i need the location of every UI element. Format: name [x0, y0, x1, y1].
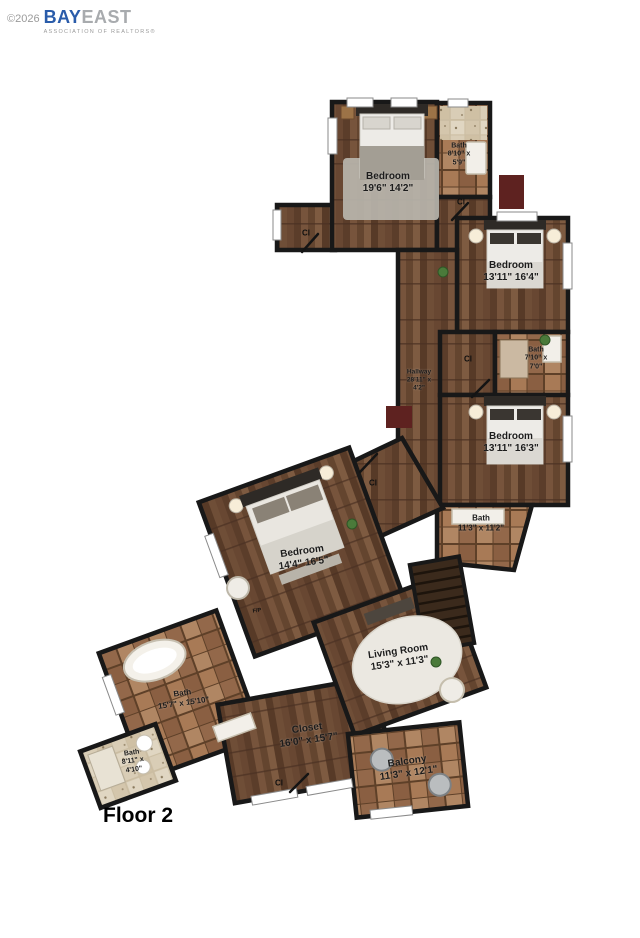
room-dims: 8'10" x: [448, 151, 471, 159]
room-label-bedroom-2: Bedroom 13'11" 16'4": [483, 260, 538, 284]
lamp-table: [469, 229, 483, 243]
brand-tagline: ASSOCIATION OF REALTORS®: [44, 29, 156, 35]
window: [448, 99, 468, 107]
lamp-table: [547, 405, 561, 419]
plant-icon: [431, 657, 441, 667]
window: [273, 210, 281, 240]
dresser: [499, 175, 524, 209]
room-dims: 13'11" 16'4": [483, 272, 538, 284]
window: [328, 118, 337, 154]
window: [563, 243, 572, 289]
room-label-bath-5: Bath 8'11" x 4'10": [120, 748, 145, 776]
bed-headboard: [484, 396, 546, 406]
brand-name: BAYEAST: [44, 8, 156, 27]
copyright-text: ©2026: [7, 13, 40, 25]
room-dims: 11'3" x 11'2": [458, 523, 504, 533]
plant-icon: [438, 267, 448, 277]
pillow: [490, 409, 514, 420]
room-dims: 7'10" x: [525, 355, 548, 363]
room-label-bath-3: Bath 11'3" x 11'2": [458, 513, 504, 532]
closet-marker: Cl: [369, 479, 377, 488]
brand-lockup: BAYEAST ASSOCIATION OF REALTORS®: [44, 8, 156, 35]
room-name: Bedroom: [363, 171, 413, 183]
floor-plan-page: ©2026 BAYEAST ASSOCIATION OF REALTORS®: [0, 0, 640, 938]
floor-plan-svg: [0, 0, 640, 938]
room-label-bedroom-3: Bedroom 13'11" 16'3": [483, 431, 538, 455]
floor-title: Floor 2: [103, 804, 173, 828]
pillow: [517, 409, 541, 420]
closet-marker: Cl: [275, 779, 283, 788]
brand-bay: BAY: [44, 7, 82, 27]
nightstand: [341, 106, 354, 119]
window: [497, 212, 537, 221]
pillow: [363, 117, 390, 129]
room-label-bath-1: Bath 8'10" x 5'9": [448, 142, 471, 167]
room-dims: 7'0": [525, 363, 548, 371]
armchair: [227, 577, 249, 599]
room-dims: 13'11" 16'3": [483, 443, 538, 455]
room-name: Bedroom: [483, 431, 538, 443]
lamp-table: [547, 229, 561, 243]
pillow: [490, 233, 514, 244]
brand-east: EAST: [81, 7, 131, 27]
window: [347, 98, 373, 107]
window: [391, 98, 417, 107]
pillow: [517, 233, 541, 244]
bayeast-watermark: ©2026 BAYEAST ASSOCIATION OF REALTORS®: [7, 8, 156, 35]
room-closet-wing: [277, 205, 335, 250]
closet-marker: Cl: [457, 198, 465, 207]
hall-rug: [386, 406, 412, 428]
room-name: Hallway: [407, 368, 431, 376]
bath-1-shower-floor: [440, 106, 487, 140]
room-name: Bedroom: [483, 260, 538, 272]
room-name: Bath: [458, 513, 504, 523]
room-dims: 19'6" 14'2": [363, 183, 413, 195]
window: [563, 416, 572, 462]
plant-icon: [540, 335, 550, 345]
plant-icon: [347, 519, 357, 529]
pillow: [394, 117, 421, 129]
closet-marker: Cl: [464, 355, 472, 364]
lamp-table: [469, 405, 483, 419]
room-label-bath-2: Bath 7'10" x 7'0": [525, 346, 548, 371]
room-dims: 5'9": [448, 159, 471, 167]
room-dims: 4'2": [407, 384, 431, 392]
closet-marker: Cl: [302, 229, 310, 238]
round-chair: [440, 678, 464, 702]
room-label-bedroom-1: Bedroom 19'6" 14'2": [363, 171, 413, 195]
fireplace-marker: F/P: [252, 607, 261, 614]
room-dims: 28'11" x: [407, 376, 431, 384]
room-closet-mid: [440, 332, 495, 395]
room-label-hallway: Hallway 28'11" x 4'2": [407, 368, 431, 391]
